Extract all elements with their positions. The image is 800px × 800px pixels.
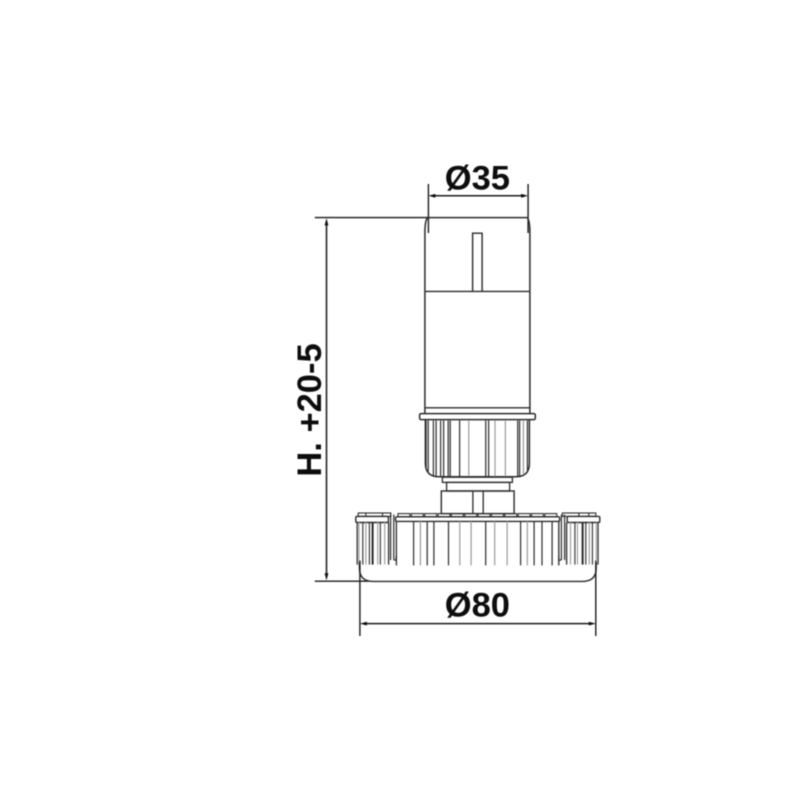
svg-text:H. +20-5: H. +20-5 (291, 343, 329, 476)
svg-text:Ø35: Ø35 (445, 160, 510, 198)
svg-text:Ø80: Ø80 (445, 586, 510, 624)
